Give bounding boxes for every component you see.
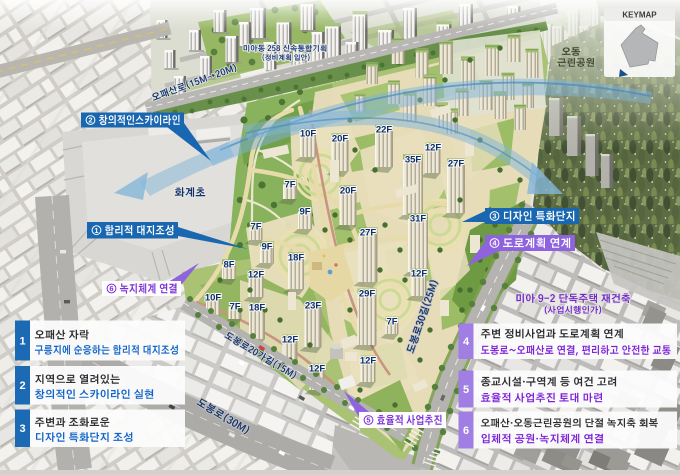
svg-text:10F: 10F — [300, 129, 317, 140]
svg-text:27F: 27F — [448, 159, 465, 170]
svg-text:18F: 18F — [288, 253, 305, 264]
svg-text:12F: 12F — [425, 143, 442, 154]
svg-text:5: 5 — [463, 384, 469, 396]
svg-text:3: 3 — [492, 212, 496, 221]
svg-text:9F: 9F — [261, 242, 272, 253]
svg-text:20F: 20F — [340, 186, 357, 197]
svg-text:22F: 22F — [376, 125, 393, 136]
svg-text:2: 2 — [88, 116, 92, 125]
svg-text:6: 6 — [109, 284, 113, 293]
svg-text:9F: 9F — [299, 207, 310, 218]
svg-text:29F: 29F — [359, 289, 376, 300]
svg-text:7F: 7F — [284, 180, 295, 191]
svg-text:27F: 27F — [360, 228, 377, 239]
svg-text:12F: 12F — [282, 335, 299, 346]
svg-text:KEYMAP: KEYMAP — [622, 11, 657, 20]
svg-text:7F: 7F — [386, 317, 397, 328]
svg-text:31F: 31F — [410, 214, 427, 225]
svg-text:10F: 10F — [205, 293, 222, 304]
svg-text:12F: 12F — [360, 356, 377, 367]
svg-text:4: 4 — [463, 336, 470, 348]
svg-text:20F: 20F — [332, 134, 349, 145]
svg-text:1: 1 — [19, 335, 25, 347]
svg-text:12F: 12F — [411, 269, 428, 280]
svg-text:12F: 12F — [248, 270, 265, 281]
svg-text:18F: 18F — [249, 303, 266, 314]
svg-text:12F: 12F — [309, 364, 326, 375]
svg-text:7F: 7F — [250, 222, 261, 233]
svg-text:2: 2 — [19, 380, 25, 392]
svg-text:5: 5 — [366, 416, 370, 425]
svg-text:23F: 23F — [305, 301, 322, 312]
svg-text:1: 1 — [94, 226, 98, 235]
svg-text:6: 6 — [463, 425, 469, 437]
svg-text:35F: 35F — [405, 155, 422, 166]
svg-text:7F: 7F — [229, 302, 240, 313]
svg-text:8F: 8F — [223, 260, 234, 271]
svg-text:3: 3 — [19, 423, 25, 435]
